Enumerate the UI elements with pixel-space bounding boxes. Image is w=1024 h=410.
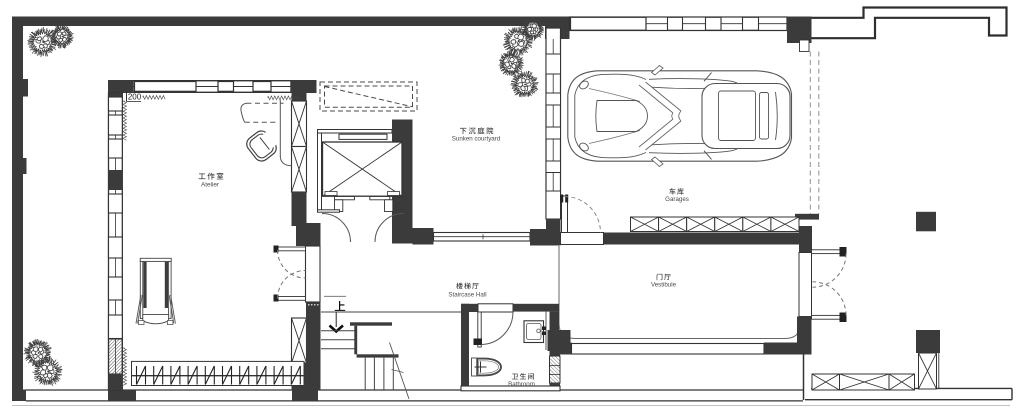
- svg-text:Sunken courtyard: Sunken courtyard: [452, 136, 501, 143]
- svg-text:Vestibule: Vestibule: [651, 282, 677, 289]
- svg-text:Garages: Garages: [665, 196, 689, 203]
- svg-text:Atelier: Atelier: [201, 182, 220, 189]
- svg-text:Bathroom: Bathroom: [508, 381, 535, 388]
- svg-text:Staircase Hall: Staircase Hall: [448, 291, 486, 298]
- svg-text:200: 200: [128, 93, 142, 102]
